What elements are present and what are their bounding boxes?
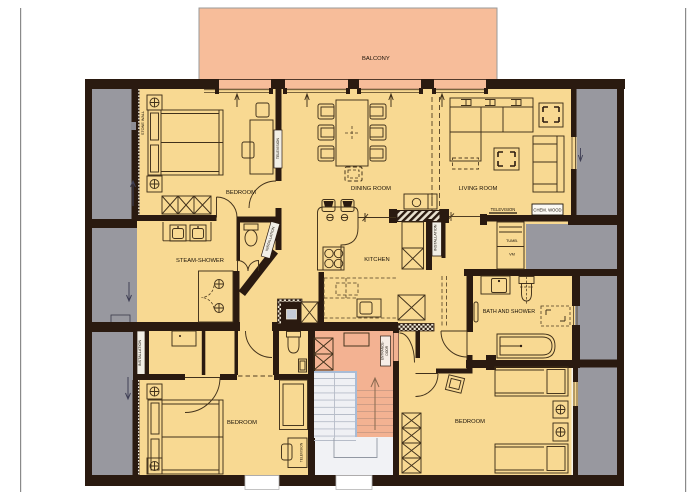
svg-text:BEDROOM: BEDROOM	[455, 419, 485, 425]
svg-text:VM: VM	[509, 252, 515, 257]
svg-text:ENTRANCE-: ENTRANCE-	[381, 341, 385, 360]
svg-text:CHEM. WOOD: CHEM. WOOD	[533, 208, 561, 213]
svg-text:TELEVISION: TELEVISION	[491, 207, 516, 212]
svg-text:BEDROOM: BEDROOM	[227, 420, 257, 426]
svg-text:BALCONY: BALCONY	[362, 56, 390, 62]
svg-text:KITCHEN: KITCHEN	[364, 257, 389, 263]
svg-text:TELEVISION: TELEVISION	[276, 138, 280, 160]
svg-text:BATH AND SHOWER: BATH AND SHOWER	[483, 309, 535, 315]
svg-text:BEDROOM: BEDROOM	[226, 190, 256, 196]
svg-text:DINING ROOM: DINING ROOM	[351, 186, 391, 192]
svg-text:TUMB.: TUMB.	[506, 238, 518, 243]
svg-text:STONE WALL: STONE WALL	[141, 111, 145, 135]
svg-text:TELEVISION: TELEVISION	[300, 442, 304, 462]
svg-text:INSTALLATION: INSTALLATION	[434, 224, 438, 251]
svg-text:DOOR: DOOR	[385, 345, 389, 355]
svg-text:LIVING ROOM: LIVING ROOM	[459, 186, 498, 192]
svg-text:INSTALLATION: INSTALLATION	[138, 340, 142, 367]
svg-text:STEAM-SHOWER: STEAM-SHOWER	[176, 258, 224, 264]
